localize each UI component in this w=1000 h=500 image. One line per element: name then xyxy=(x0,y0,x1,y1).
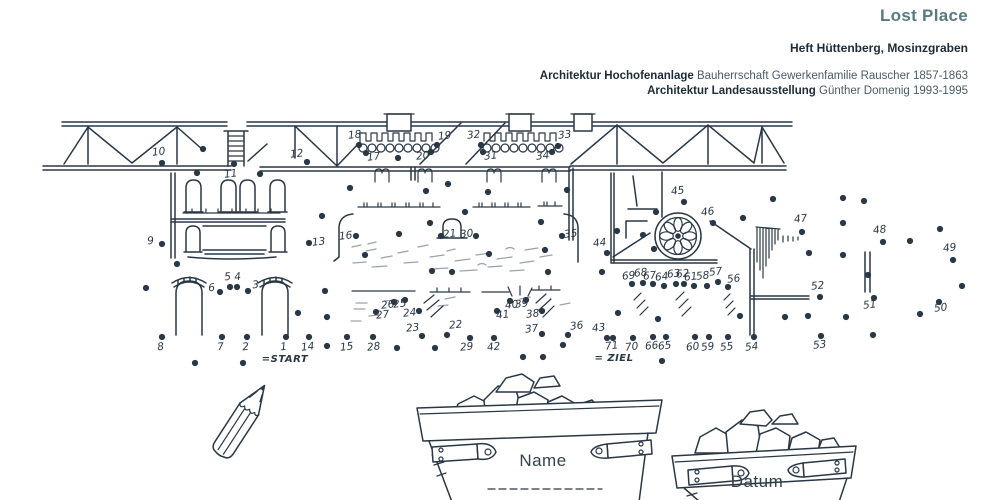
extra-dot-54 xyxy=(805,313,811,319)
extra-dot-56 xyxy=(917,311,923,317)
dot-label-18: 18 xyxy=(347,128,362,141)
dot-label-8: 8 xyxy=(157,341,165,354)
dot-label-41: 41 xyxy=(495,308,510,321)
dot-5 xyxy=(227,284,233,290)
extra-dot-26 xyxy=(486,251,492,257)
dot-label-52: 52 xyxy=(810,279,825,292)
dot-label-16: 16 xyxy=(338,229,353,242)
dot-label-45: 45 xyxy=(670,184,685,197)
dot-36 xyxy=(565,332,571,338)
dot-label-37: 37 xyxy=(524,322,539,335)
extra-dot-34 xyxy=(640,232,646,238)
extra-dot-52 xyxy=(737,313,743,319)
dot-12 xyxy=(304,159,310,165)
dot-label-31: 31 xyxy=(483,149,498,162)
hinge-strap-right xyxy=(591,440,652,458)
dot-6 xyxy=(217,289,223,295)
dot-9 xyxy=(159,241,165,247)
dot-label-32: 32 xyxy=(466,128,481,141)
extra-dot-36 xyxy=(651,246,657,252)
dot-54 xyxy=(751,334,757,340)
extra-dot-50 xyxy=(865,272,871,278)
dot-64 xyxy=(661,283,667,289)
dot-label-12: 12 xyxy=(289,147,304,160)
extra-dot-24 xyxy=(429,268,435,274)
dot-label-22: 22 xyxy=(448,318,463,331)
extra-dot-39 xyxy=(655,316,661,322)
dot-label-47: 47 xyxy=(793,212,808,225)
extra-dot-27 xyxy=(545,269,551,275)
dot-16 xyxy=(353,233,359,239)
extra-dot-11 xyxy=(240,360,246,366)
extra-dot-35 xyxy=(614,228,620,234)
dot-label-5: 5 xyxy=(224,271,232,284)
extra-dot-8 xyxy=(322,288,328,294)
extra-dot-7 xyxy=(324,314,330,320)
dot-label-49: 49 xyxy=(942,241,957,254)
dot-label-70: 70 xyxy=(624,340,639,353)
dot-label-36: 36 xyxy=(569,319,584,332)
extra-dot-31 xyxy=(540,354,546,360)
dot-label-11: 11 xyxy=(223,167,238,180)
dot-47 xyxy=(799,229,805,235)
extra-dot-2 xyxy=(200,146,206,152)
rosette-window xyxy=(655,213,701,259)
extra-dot-4 xyxy=(174,261,180,267)
dot-18 xyxy=(356,142,362,148)
extra-dot-16 xyxy=(485,189,491,195)
dot-label-54: 54 xyxy=(744,340,759,353)
extra-dot-44 xyxy=(740,215,746,221)
dot-14 xyxy=(306,334,312,340)
extra-dot-28 xyxy=(394,345,400,351)
ladder xyxy=(224,131,248,166)
dot-49 xyxy=(950,257,956,263)
central-hall xyxy=(334,214,578,321)
dot-37 xyxy=(539,331,545,337)
dot-label-35: 35 xyxy=(563,227,578,240)
dot-label-33: 33 xyxy=(557,128,572,141)
extra-dot-3 xyxy=(319,213,325,219)
dot-label-42: 42 xyxy=(486,340,501,353)
dot-label-21: 21 xyxy=(442,227,457,240)
dot-label-2: 2 xyxy=(242,341,250,354)
dot-28 xyxy=(370,334,376,340)
extra-dot-57 xyxy=(870,332,876,338)
extra-dot-19 xyxy=(538,219,544,225)
dot-label-71: 71 xyxy=(604,339,619,352)
dot-22 xyxy=(444,332,450,338)
extra-dot-46 xyxy=(937,226,943,232)
ziel-label: = ZIEL xyxy=(594,353,633,364)
ore-basket-name: Name xyxy=(417,374,662,500)
extra-dot-13 xyxy=(395,155,401,161)
dot-label-13: 13 xyxy=(311,235,326,248)
extra-dot-48 xyxy=(806,250,812,256)
dot-label-6: 6 xyxy=(208,282,216,295)
pencil xyxy=(210,379,274,461)
dot-label-7: 7 xyxy=(217,341,225,354)
extra-dot-47 xyxy=(907,238,913,244)
dot-label-46: 46 xyxy=(700,205,715,218)
extra-dot-40 xyxy=(599,269,605,275)
dot-label-55: 55 xyxy=(719,340,734,353)
dot-57 xyxy=(715,279,721,285)
dot-label-66: 66 xyxy=(644,339,659,352)
dot-label-44: 44 xyxy=(592,236,607,249)
extra-dot-25 xyxy=(449,269,455,275)
extra-dot-18 xyxy=(462,209,468,215)
dot-label-27: 27 xyxy=(375,308,390,321)
dot-label-34: 34 xyxy=(535,149,550,162)
dot-58 xyxy=(704,283,710,289)
extra-dot-10 xyxy=(192,360,198,366)
dot-59 xyxy=(706,334,712,340)
extra-dot-49 xyxy=(840,252,846,258)
dot-10 xyxy=(159,160,165,166)
extra-dot-17 xyxy=(564,187,570,193)
dot-34 xyxy=(549,149,555,155)
dot-19 xyxy=(434,142,440,148)
extra-dot-43 xyxy=(861,198,867,204)
dot-38 xyxy=(539,308,545,314)
dot-label-69: 69 xyxy=(621,269,636,282)
extra-dot-6 xyxy=(295,310,301,316)
dot-1 xyxy=(283,334,289,340)
extra-dot-42 xyxy=(840,195,846,201)
hinge-strap-left xyxy=(432,444,496,462)
dot-63 xyxy=(673,281,679,287)
extra-dot-15 xyxy=(445,181,451,187)
scallop-row xyxy=(359,144,563,152)
dot-4 xyxy=(234,284,240,290)
puzzle-dot-numbers: 1234567891011121314151617181920212223242… xyxy=(147,128,958,353)
dot-label-4: 4 xyxy=(234,271,242,284)
dot-8 xyxy=(159,334,165,340)
extra-dot-51 xyxy=(959,283,965,289)
extra-dot-38 xyxy=(615,310,621,316)
extra-dot-30 xyxy=(520,354,526,360)
start-label: =START xyxy=(262,354,309,365)
extra-dot-41 xyxy=(770,196,776,202)
datum-field-label: Datum xyxy=(731,472,784,491)
dot-label-51: 51 xyxy=(862,298,877,311)
extra-dot-21 xyxy=(427,220,433,226)
dot-24 xyxy=(416,308,422,314)
dot-label-14: 14 xyxy=(300,340,315,353)
dot-3 xyxy=(245,288,251,294)
dot-61 xyxy=(691,283,697,289)
extra-dot-53 xyxy=(782,314,788,320)
dot-label-65: 65 xyxy=(657,339,672,352)
dot-label-9: 9 xyxy=(147,235,155,248)
dot-48 xyxy=(880,239,886,245)
dot-32 xyxy=(478,142,484,148)
dot-label-56: 56 xyxy=(726,272,741,285)
dot-label-68: 68 xyxy=(633,266,648,279)
dot-label-59: 59 xyxy=(700,340,715,353)
name-field-label: Name xyxy=(519,451,566,470)
extra-dot-45 xyxy=(840,220,846,226)
extra-dot-29 xyxy=(432,345,438,351)
arched-building xyxy=(171,173,287,259)
dot-label-57: 57 xyxy=(708,265,723,278)
dot-label-1: 1 xyxy=(280,341,288,354)
extra-dot-32 xyxy=(560,342,566,348)
dot-label-64: 64 xyxy=(654,270,669,283)
dot-44 xyxy=(604,250,610,256)
extra-dot-14 xyxy=(423,188,429,194)
dot-label-43: 43 xyxy=(591,321,606,334)
dot-11 xyxy=(231,161,237,167)
extra-dot-12 xyxy=(347,185,353,191)
dot-label-30: 30 xyxy=(459,227,474,240)
dot-7 xyxy=(219,334,225,340)
dot-label-28: 28 xyxy=(366,340,381,353)
ruin-structure xyxy=(611,172,870,335)
extra-dot-23 xyxy=(362,252,368,258)
extra-dot-1 xyxy=(257,171,263,177)
connect-dots-drawing: Name Datum =START = ZIEL xyxy=(0,0,1000,500)
dot-55 xyxy=(725,334,731,340)
dot-label-23: 23 xyxy=(405,321,420,334)
dot-52 xyxy=(817,294,823,300)
dot-label-17: 17 xyxy=(366,150,381,163)
dot-label-3: 3 xyxy=(252,279,260,292)
dot-15 xyxy=(344,334,350,340)
dot-label-20: 20 xyxy=(415,149,430,162)
dot-60 xyxy=(692,334,698,340)
dot-label-48: 48 xyxy=(872,223,887,236)
dot-45 xyxy=(681,199,687,205)
extra-dot-20 xyxy=(396,231,402,237)
dot-label-29: 29 xyxy=(459,340,474,353)
dot-label-15: 15 xyxy=(339,340,354,353)
extra-dot-0 xyxy=(194,170,200,176)
dot-46 xyxy=(710,220,716,226)
dot-label-53: 53 xyxy=(812,338,827,351)
dot-33 xyxy=(555,143,561,149)
extra-dot-33 xyxy=(659,358,665,364)
extra-dot-5 xyxy=(143,285,149,291)
dot-label-63: 63 xyxy=(666,267,681,280)
extra-dot-9 xyxy=(324,343,330,349)
extra-dot-22 xyxy=(542,247,548,253)
right-truss-bridge xyxy=(570,125,786,170)
dot-label-19: 19 xyxy=(437,129,452,142)
dot-23 xyxy=(419,333,425,339)
dot-label-60: 60 xyxy=(685,340,700,353)
dot-label-10: 10 xyxy=(151,145,166,158)
dot-label-50: 50 xyxy=(933,301,948,314)
puzzle-dots xyxy=(143,142,965,366)
extra-dot-55 xyxy=(843,314,849,320)
ore-basket-datum: Datum xyxy=(672,410,856,500)
dot-2 xyxy=(244,334,250,340)
extra-dot-37 xyxy=(653,209,659,215)
